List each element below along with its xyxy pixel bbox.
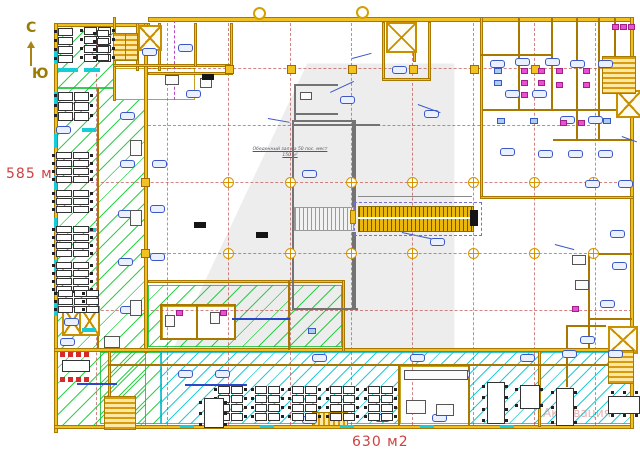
chair xyxy=(52,178,55,181)
window-sill xyxy=(54,134,57,148)
column-axis-marker xyxy=(468,248,479,259)
chair xyxy=(93,48,96,51)
room-label-chip xyxy=(515,58,530,66)
window-sill xyxy=(260,425,274,428)
window-sill xyxy=(84,68,100,72)
chair xyxy=(52,288,55,291)
chair xyxy=(394,406,397,409)
chair xyxy=(540,404,543,407)
chair xyxy=(199,401,202,404)
chair xyxy=(90,228,93,231)
chair xyxy=(482,396,485,399)
chair xyxy=(80,38,83,41)
meeting-chair xyxy=(76,352,81,357)
desk xyxy=(58,46,73,54)
partition-wall xyxy=(294,124,380,126)
escalator-run xyxy=(358,206,474,232)
desk xyxy=(73,242,89,249)
desk xyxy=(330,404,342,412)
desk xyxy=(73,262,89,269)
wall xyxy=(113,64,233,67)
desk xyxy=(58,102,73,111)
chair xyxy=(551,391,554,394)
room-label-chip xyxy=(120,112,135,120)
window-sill xyxy=(58,68,78,72)
room-label-chip xyxy=(215,370,230,378)
room-label-chip xyxy=(600,300,615,308)
desk xyxy=(56,270,72,277)
furniture-item xyxy=(436,404,454,416)
chair xyxy=(80,29,83,32)
chair xyxy=(251,415,254,418)
desk xyxy=(255,386,267,394)
sanitary-fixture xyxy=(538,68,545,74)
sanitary-fixture xyxy=(556,68,563,74)
chair xyxy=(505,408,508,411)
chair xyxy=(224,401,227,404)
grid-node-marker xyxy=(287,65,296,74)
chair xyxy=(199,412,202,415)
room-label-chip xyxy=(340,96,355,104)
desk xyxy=(58,28,73,36)
window-sill xyxy=(340,425,354,428)
floor-plan-canvas: С Ю 585 м2 630 м2 Обеденный зал на 50 по… xyxy=(0,0,640,454)
desk xyxy=(381,404,393,412)
room-label-chip xyxy=(570,60,585,68)
chair xyxy=(54,300,57,303)
room-label-chip xyxy=(538,150,553,158)
chair xyxy=(90,162,93,165)
partition-wall xyxy=(294,113,338,115)
elevator-shaft xyxy=(616,90,640,118)
room-label-chip xyxy=(186,90,201,98)
desk xyxy=(292,404,304,412)
desk xyxy=(268,404,280,412)
chair xyxy=(90,178,93,181)
wall xyxy=(148,72,232,75)
chair xyxy=(54,30,57,33)
room-label-chip xyxy=(612,262,627,270)
chair xyxy=(90,154,93,157)
chair xyxy=(90,244,93,247)
wall xyxy=(566,325,606,327)
dimension-tag xyxy=(194,222,206,228)
chair xyxy=(244,397,247,400)
sanitary-fixture xyxy=(220,310,227,316)
glass-partition xyxy=(77,383,117,385)
grid-axis-horizontal xyxy=(148,253,632,254)
escalator-end-cap xyxy=(350,210,356,224)
chair xyxy=(281,415,284,418)
chair xyxy=(251,406,254,409)
chair xyxy=(90,200,93,203)
desk xyxy=(56,206,72,213)
desk xyxy=(255,395,267,403)
desk xyxy=(305,413,317,421)
desk xyxy=(368,386,380,394)
desk xyxy=(56,168,72,175)
dimension-tag xyxy=(256,232,268,238)
room-label-chip xyxy=(178,370,193,378)
chair xyxy=(281,388,284,391)
desk xyxy=(305,386,317,394)
chair xyxy=(244,406,247,409)
desk xyxy=(74,112,89,121)
wall xyxy=(288,280,290,350)
chair xyxy=(52,280,55,283)
chair xyxy=(52,236,55,239)
desk xyxy=(381,386,393,394)
wall xyxy=(160,338,236,340)
furniture-item xyxy=(130,210,142,226)
wall xyxy=(480,196,634,199)
desk xyxy=(97,54,109,61)
compass: С Ю xyxy=(24,20,48,82)
desk xyxy=(330,413,342,421)
chair xyxy=(574,391,577,394)
desk xyxy=(231,413,243,421)
wall xyxy=(196,304,198,340)
chair xyxy=(52,272,55,275)
chair xyxy=(224,423,227,426)
desk xyxy=(292,386,304,394)
desk xyxy=(381,413,393,421)
desk xyxy=(56,278,72,285)
sink-fixture xyxy=(494,68,502,74)
column-axis-marker xyxy=(285,177,296,188)
chair xyxy=(635,391,638,394)
window-sill xyxy=(82,328,96,332)
chair xyxy=(326,388,329,391)
chair xyxy=(635,414,638,417)
wall xyxy=(398,364,400,426)
room-label-chip xyxy=(312,354,327,362)
chair xyxy=(52,208,55,211)
chair xyxy=(52,170,55,173)
room-label-chip xyxy=(118,258,133,266)
glass-partition xyxy=(232,318,290,320)
chair xyxy=(90,236,93,239)
desk xyxy=(330,395,342,403)
sanitary-fixture xyxy=(538,80,545,86)
meeting-chair xyxy=(60,377,65,382)
meeting-chair xyxy=(60,352,65,357)
room-label-chip xyxy=(588,116,603,124)
wall xyxy=(234,304,236,340)
chair xyxy=(318,415,321,418)
sanitary-fixture xyxy=(583,68,590,74)
chair xyxy=(52,252,55,255)
desk xyxy=(73,198,89,205)
chair xyxy=(93,32,96,35)
desk xyxy=(255,404,267,412)
conference-table xyxy=(487,382,505,424)
chair xyxy=(90,94,93,97)
room-label-chip xyxy=(60,338,75,346)
meeting-chair xyxy=(68,352,73,357)
desk xyxy=(73,160,89,167)
chair xyxy=(54,94,57,97)
chair xyxy=(623,414,626,417)
chair xyxy=(288,406,291,409)
desk xyxy=(343,395,355,403)
wall xyxy=(480,17,483,199)
desk xyxy=(56,262,72,269)
desk xyxy=(268,413,280,421)
conference-table xyxy=(608,396,640,414)
desk xyxy=(73,234,89,241)
chair xyxy=(356,397,359,400)
chair xyxy=(318,397,321,400)
sanitary-fixture xyxy=(628,24,635,30)
furniture-item xyxy=(575,280,589,290)
chair xyxy=(326,406,329,409)
desk xyxy=(73,168,89,175)
chair xyxy=(112,47,115,50)
compass-south-label: Ю xyxy=(32,66,48,82)
partition-wall xyxy=(292,308,358,310)
desk xyxy=(58,92,73,101)
desk xyxy=(73,152,89,159)
chair xyxy=(82,300,85,303)
room-label-chip xyxy=(598,60,613,68)
chair xyxy=(90,192,93,195)
chair xyxy=(54,104,57,107)
chair xyxy=(326,397,329,400)
desk xyxy=(86,290,99,297)
room-label-chip xyxy=(64,318,79,326)
desk xyxy=(58,55,73,63)
conference-table xyxy=(556,388,574,426)
wall xyxy=(614,17,616,57)
chair xyxy=(505,396,508,399)
desk xyxy=(56,152,72,159)
desk xyxy=(74,92,89,101)
furniture-item xyxy=(404,370,468,380)
desk xyxy=(97,38,109,45)
room-label-chip xyxy=(580,336,595,344)
room-label-chip xyxy=(410,354,425,362)
sanitary-fixture xyxy=(583,82,590,88)
conference-table xyxy=(520,385,540,409)
chair xyxy=(326,415,329,418)
chair xyxy=(90,208,93,211)
stairwell xyxy=(104,396,136,430)
desk xyxy=(231,386,243,394)
sanitary-fixture xyxy=(556,82,563,88)
meeting-chair xyxy=(68,377,73,382)
chair xyxy=(394,388,397,391)
sink-fixture xyxy=(603,118,611,124)
desk xyxy=(56,190,72,197)
dimension-tag xyxy=(202,74,214,80)
desk xyxy=(330,386,342,394)
room-label-chip xyxy=(430,238,445,246)
chair xyxy=(364,397,367,400)
sanitary-fixture xyxy=(620,24,627,30)
chair xyxy=(251,397,254,400)
column-axis-marker xyxy=(529,177,540,188)
chair xyxy=(623,391,626,394)
chair xyxy=(515,388,518,391)
grid-node-marker xyxy=(348,65,357,74)
conveyor-run xyxy=(294,207,354,231)
furniture-item xyxy=(130,140,142,156)
wall xyxy=(148,280,344,283)
desk xyxy=(73,176,89,183)
room-label-chip xyxy=(532,90,547,98)
chair xyxy=(54,308,57,311)
chair xyxy=(288,397,291,400)
chair xyxy=(318,388,321,391)
room-label-chip xyxy=(142,48,157,56)
desk xyxy=(305,404,317,412)
chair xyxy=(356,415,359,418)
desk xyxy=(368,404,380,412)
column-axis-marker xyxy=(223,177,234,188)
desk xyxy=(368,413,380,421)
chair xyxy=(288,415,291,418)
chair xyxy=(244,388,247,391)
chair xyxy=(394,397,397,400)
sanitary-fixture xyxy=(612,24,619,30)
desk xyxy=(97,46,109,53)
chair xyxy=(52,162,55,165)
chair xyxy=(611,414,614,417)
desk xyxy=(343,413,355,421)
leader-line xyxy=(352,53,372,59)
room-label-chip xyxy=(302,170,317,178)
chair xyxy=(90,104,93,107)
desk xyxy=(97,30,109,37)
desk xyxy=(58,298,73,305)
wall xyxy=(108,364,632,366)
partition-wall xyxy=(294,84,296,122)
sanitary-fixture xyxy=(521,68,528,74)
chair xyxy=(82,292,85,295)
sanitary-fixture xyxy=(578,120,585,126)
desk xyxy=(58,112,73,121)
wall xyxy=(588,253,590,348)
chair xyxy=(281,397,284,400)
desk xyxy=(56,160,72,167)
desk xyxy=(231,395,243,403)
sink-fixture xyxy=(497,118,505,124)
chair xyxy=(482,408,485,411)
wall xyxy=(588,318,632,320)
furniture-item xyxy=(130,300,142,316)
desk xyxy=(73,278,89,285)
chair xyxy=(52,244,55,247)
grid-node-marker xyxy=(409,65,418,74)
leader-line xyxy=(555,244,575,250)
chair xyxy=(112,29,115,32)
chair xyxy=(52,264,55,267)
column-axis-marker xyxy=(346,177,357,188)
sanitary-fixture xyxy=(176,310,183,316)
room-label-chip xyxy=(585,180,600,188)
wall xyxy=(382,78,431,81)
room-label-chip xyxy=(500,148,515,156)
chair xyxy=(505,385,508,388)
desk xyxy=(268,395,280,403)
axis-bubble-marker xyxy=(253,7,266,20)
furniture-item xyxy=(300,92,312,100)
room-label-chip xyxy=(152,160,167,168)
chair xyxy=(54,57,57,60)
chair xyxy=(52,154,55,157)
axis-bubble-marker xyxy=(356,6,369,19)
window-sill xyxy=(500,425,514,428)
desk xyxy=(73,206,89,213)
wall xyxy=(194,23,197,67)
desk xyxy=(255,413,267,421)
grid-node-marker xyxy=(225,65,234,74)
compass-north-label: С xyxy=(26,20,36,36)
chair xyxy=(281,406,284,409)
utility-line-vertical xyxy=(174,20,175,100)
chair xyxy=(394,415,397,418)
furniture-item xyxy=(104,336,120,348)
sanitary-fixture xyxy=(521,80,528,86)
area-label-bottom: 630 м2 xyxy=(352,434,409,450)
desk xyxy=(292,413,304,421)
desk xyxy=(56,176,72,183)
chair xyxy=(611,391,614,394)
room-label-chip xyxy=(178,44,193,52)
chair xyxy=(90,280,93,283)
desk xyxy=(218,386,230,394)
room-label-chip xyxy=(392,66,407,74)
chair xyxy=(356,406,359,409)
chair xyxy=(214,388,217,391)
sink-fixture xyxy=(494,80,502,86)
chair xyxy=(244,415,247,418)
desk xyxy=(58,290,73,297)
grid-node-marker xyxy=(141,178,150,187)
chair xyxy=(356,388,359,391)
room-label-chip xyxy=(120,160,135,168)
chair xyxy=(112,56,115,59)
chair xyxy=(93,56,96,59)
chair xyxy=(90,264,93,267)
escalator-end-cap xyxy=(470,210,478,226)
chair xyxy=(54,48,57,51)
furniture-item xyxy=(165,75,179,85)
column-axis-marker xyxy=(468,177,479,188)
furniture-item xyxy=(406,400,426,414)
escalator-divider xyxy=(358,217,472,219)
room-label-chip xyxy=(150,253,165,261)
chair xyxy=(52,228,55,231)
conference-table xyxy=(204,398,224,428)
chair xyxy=(224,412,227,415)
chair xyxy=(80,56,83,59)
desk xyxy=(56,234,72,241)
room-label-chip xyxy=(150,205,165,213)
chair xyxy=(364,406,367,409)
chair xyxy=(199,423,202,426)
partition-wall xyxy=(352,232,356,310)
room-label-chip xyxy=(610,230,625,238)
dimension-line xyxy=(358,196,472,197)
desk xyxy=(58,37,73,45)
sanitary-fixture xyxy=(572,306,579,312)
window-sill xyxy=(180,425,194,428)
desk xyxy=(56,198,72,205)
chair xyxy=(93,40,96,43)
chair xyxy=(54,292,57,295)
